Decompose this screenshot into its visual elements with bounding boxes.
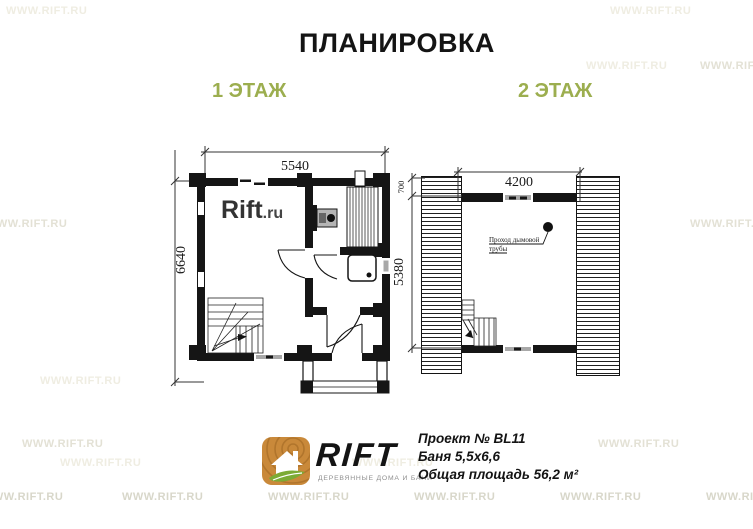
watermark: WWW.RIFT.RU: [700, 60, 753, 72]
floor2-label: 2 ЭТАЖ: [518, 80, 592, 103]
floor1-dim-height: 6640: [174, 246, 189, 274]
watermark: WWW.RIFT.RU: [690, 218, 753, 230]
floorplan-page: WWW.RIFT.RU WWW.RIFT.RU WWW.RIFT.RU WWW.…: [0, 0, 753, 529]
floor2-dim-height: 5380: [393, 258, 407, 286]
chimney-dot: [543, 222, 553, 232]
chimney-note-line2: трубы: [489, 245, 508, 253]
watermark: WWW.RIFT.RU: [268, 491, 349, 503]
watermark: WWW.RIFT.RU: [0, 218, 67, 230]
floor1-dim-width: 5540: [281, 159, 309, 174]
floor1-drawing: 5540 6640: [168, 140, 403, 405]
watermark: WWW.RIFT.RU: [586, 60, 667, 72]
stove-icon: [313, 205, 337, 231]
watermark: WWW.RIFT.RU: [598, 438, 679, 450]
floor2-dim-width: 4200: [505, 175, 533, 190]
floor2-drawing: 4200 700 5380 Пр: [393, 145, 633, 380]
project-area: Общая площадь 56,2 м²: [418, 466, 578, 484]
wood-house-leaf-icon: [262, 437, 310, 485]
page-title: ПЛАНИРОВКА: [277, 28, 517, 59]
project-size: Баня 5,5х6,6: [418, 448, 578, 466]
watermark: WWW.RIFT.RU: [122, 491, 203, 503]
watermark: WWW.RIFT.RU: [0, 491, 63, 503]
watermark: WWW.RIFT.RU: [414, 491, 495, 503]
floor2-stairs: [462, 300, 496, 346]
floor2-plan: 4200 700 5380 Пр: [393, 145, 633, 380]
plan-watermark-brand: Rift.ru: [221, 196, 283, 225]
project-info: Проект № BL11 Баня 5,5х6,6 Общая площадь…: [418, 430, 578, 484]
rift-brand-tagline: ДЕРЕВЯННЫЕ ДОМА И БАНИ: [318, 475, 433, 482]
watermark: WWW.RIFT.RU: [560, 491, 641, 503]
watermark: WWW.RIFT.RU: [706, 491, 753, 503]
watermark: WWW.RIFT.RU: [40, 375, 121, 387]
watermark: WWW.RIFT.RU: [22, 438, 103, 450]
floor1-stairs: [208, 298, 263, 353]
floor2-windows: [503, 193, 533, 353]
chimney-note-line1: Проход дымовой: [489, 236, 540, 244]
rift-brand-word: RIFT: [315, 436, 399, 474]
project-number: Проект № BL11: [418, 430, 578, 448]
watermark: WWW.RIFT.RU: [60, 457, 141, 469]
floor1-plan: 5540 6640: [168, 140, 403, 405]
rift-logo-icon: [262, 437, 310, 485]
watermark: WWW.RIFT.RU: [6, 5, 87, 17]
floor1-label: 1 ЭТАЖ: [212, 80, 286, 103]
porch: [301, 361, 389, 393]
watermark: WWW.RIFT.RU: [610, 5, 691, 17]
floor2-dim-top: 700: [396, 181, 406, 194]
